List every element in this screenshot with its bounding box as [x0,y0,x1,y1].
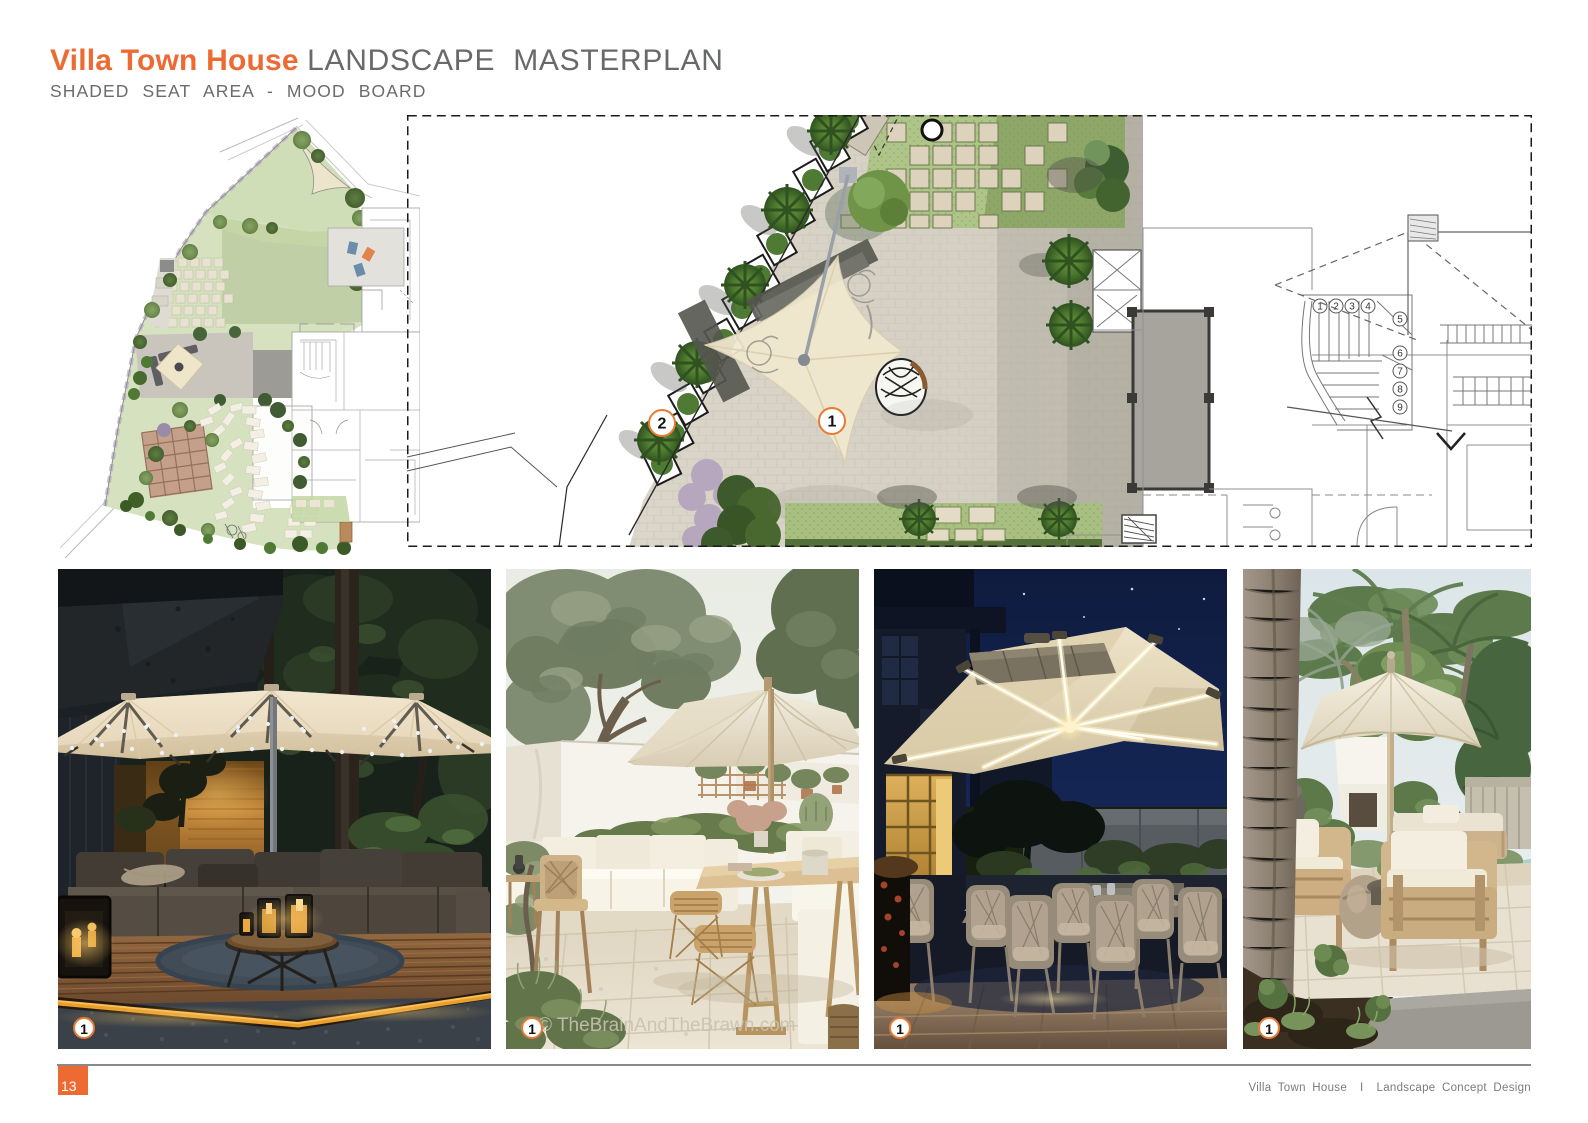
svg-text:5: 5 [1397,315,1403,326]
svg-text:© TheBrainAndTheBrawn.com: © TheBrainAndTheBrawn.com [538,1015,796,1036]
svg-text:3: 3 [1349,302,1355,313]
svg-text:6: 6 [1397,349,1403,360]
svg-text:1: 1 [828,414,837,431]
svg-text:2: 2 [658,416,667,433]
svg-text:4: 4 [1365,302,1371,313]
svg-text:8: 8 [1397,385,1403,396]
svg-text:2: 2 [1333,302,1339,313]
svg-text:7: 7 [1397,367,1403,378]
svg-text:9: 9 [1397,403,1403,414]
